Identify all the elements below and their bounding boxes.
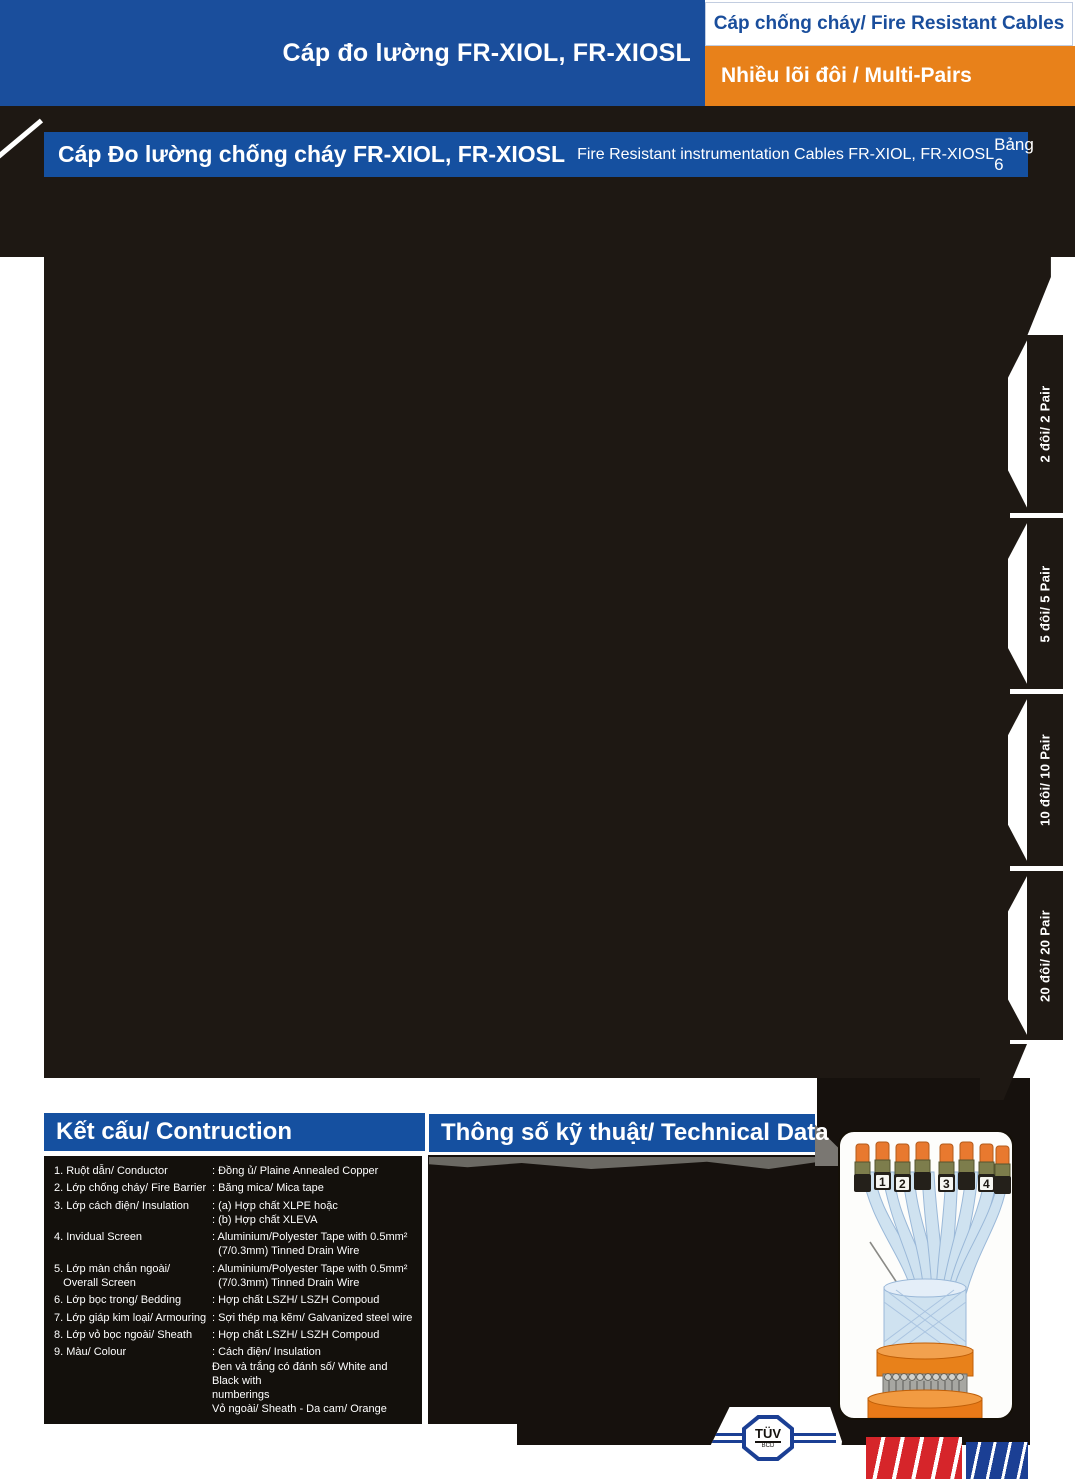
side-tab-5-pair-label: 5 đôi/ 5 Pair <box>1038 565 1053 642</box>
subcategory-tab[interactable]: Nhiều lõi đôi / Multi-Pairs <box>705 46 1075 106</box>
tuv-sub-label: BCD <box>762 1443 775 1449</box>
section-title-bar: Cáp Đo lường chống cháy FR-XIOL, FR-XIOS… <box>44 132 1028 177</box>
tab-arrow-connector <box>1008 871 1027 1040</box>
subcategory-tab-label: Nhiều lõi đôi / Multi-Pairs <box>705 64 972 88</box>
catalog-page: Cáp đo lường FR-XIOL, FR-XIOSL Cáp chống… <box>0 0 1075 1479</box>
construction-row: 6. Lớp bọc trong/ Bedding : Hợp chất LSZ… <box>54 1293 416 1307</box>
category-tab-label: Cáp chống cháy/ Fire Resistant Cables <box>714 13 1065 35</box>
tab-arrow-connector <box>1008 518 1027 689</box>
brand-logo-red-segment <box>866 1437 962 1479</box>
construction-row: 4. Invidual Screen : Aluminium/Polyester… <box>54 1230 416 1259</box>
cable-illustration: 1 2 3 4 <box>840 1132 1012 1418</box>
pair-number-3: 3 <box>943 1177 950 1191</box>
side-tab-5-pair[interactable]: 5 đôi/ 5 Pair <box>1008 518 1063 689</box>
side-tab-2-pair-label: 2 đôi/ 2 Pair <box>1038 386 1053 463</box>
construction-row: 8. Lớp vỏ bọc ngoài/ Sheath : Hợp chất L… <box>54 1328 416 1342</box>
construction-header-label: Kết cấu/ Contruction <box>44 1118 292 1146</box>
construction-row: 3. Lớp cách điện/ Insulation : (a) Hợp c… <box>54 1199 416 1228</box>
table-redacted-area <box>44 257 1010 1078</box>
pair-number-1: 1 <box>879 1175 886 1189</box>
header-black-band <box>0 106 1075 257</box>
tuv-logo: TÜV BCD <box>746 1419 790 1457</box>
top-header-band: Cáp đo lường FR-XIOL, FR-XIOSL <box>0 0 705 106</box>
brand-logo-blue-segment <box>966 1442 1028 1479</box>
tuv-label: TÜV <box>755 1427 781 1443</box>
side-tab-20-pair[interactable]: 20 đôi/ 20 Pair <box>1008 871 1063 1040</box>
section-title-en: Fire Resistant instrumentation Cables FR… <box>565 146 994 164</box>
side-tab-10-pair-label: 10 đôi/ 10 Pair <box>1038 734 1053 826</box>
brand-logo <box>866 1437 1030 1479</box>
construction-row: 1. Ruột dẫn/ Conductor : Đồng ủ/ Plaine … <box>54 1164 416 1178</box>
section-title-vi: Cáp Đo lường chống cháy FR-XIOL, FR-XIOS… <box>44 141 565 168</box>
page-title: Cáp đo lường FR-XIOL, FR-XIOSL <box>282 39 705 68</box>
construction-row: 5. Lớp màn chắn ngoài/ Overall Screen : … <box>54 1262 416 1291</box>
construction-list: 1. Ruột dẫn/ Conductor : Đồng ủ/ Plaine … <box>44 1156 422 1424</box>
construction-header: Kết cấu/ Contruction <box>44 1113 425 1154</box>
technical-header: Thông số kỹ thuật/ Technical Data <box>429 1114 815 1155</box>
tab-arrow-connector <box>1008 694 1027 866</box>
cable-illustration-card: 1 2 3 4 <box>838 1130 1014 1420</box>
construction-row: 2. Lớp chống cháy/ Fire Barrier : Băng m… <box>54 1181 416 1195</box>
tab-arrow-connector <box>1008 335 1027 513</box>
side-tab-2-pair[interactable]: 2 đôi/ 2 Pair <box>1008 335 1063 513</box>
side-tab-10-pair[interactable]: 10 đôi/ 10 Pair <box>1008 694 1063 866</box>
category-tab[interactable]: Cáp chống cháy/ Fire Resistant Cables <box>705 2 1073 46</box>
construction-row: 9. Màu/ Colour : Cách điện/ Insulation Đ… <box>54 1345 416 1416</box>
pair-number-4: 4 <box>983 1177 990 1191</box>
table-reference: Bảng 6 <box>994 135 1060 175</box>
side-tab-20-pair-label: 20 đôi/ 20 Pair <box>1038 910 1053 1002</box>
technical-header-label: Thông số kỹ thuật/ Technical Data <box>429 1119 829 1147</box>
tab-column-top-wedge <box>1008 257 1063 337</box>
construction-row: 7. Lớp giáp kim loại/ Armouring : Sợi th… <box>54 1311 416 1325</box>
pair-number-2: 2 <box>899 1177 906 1191</box>
